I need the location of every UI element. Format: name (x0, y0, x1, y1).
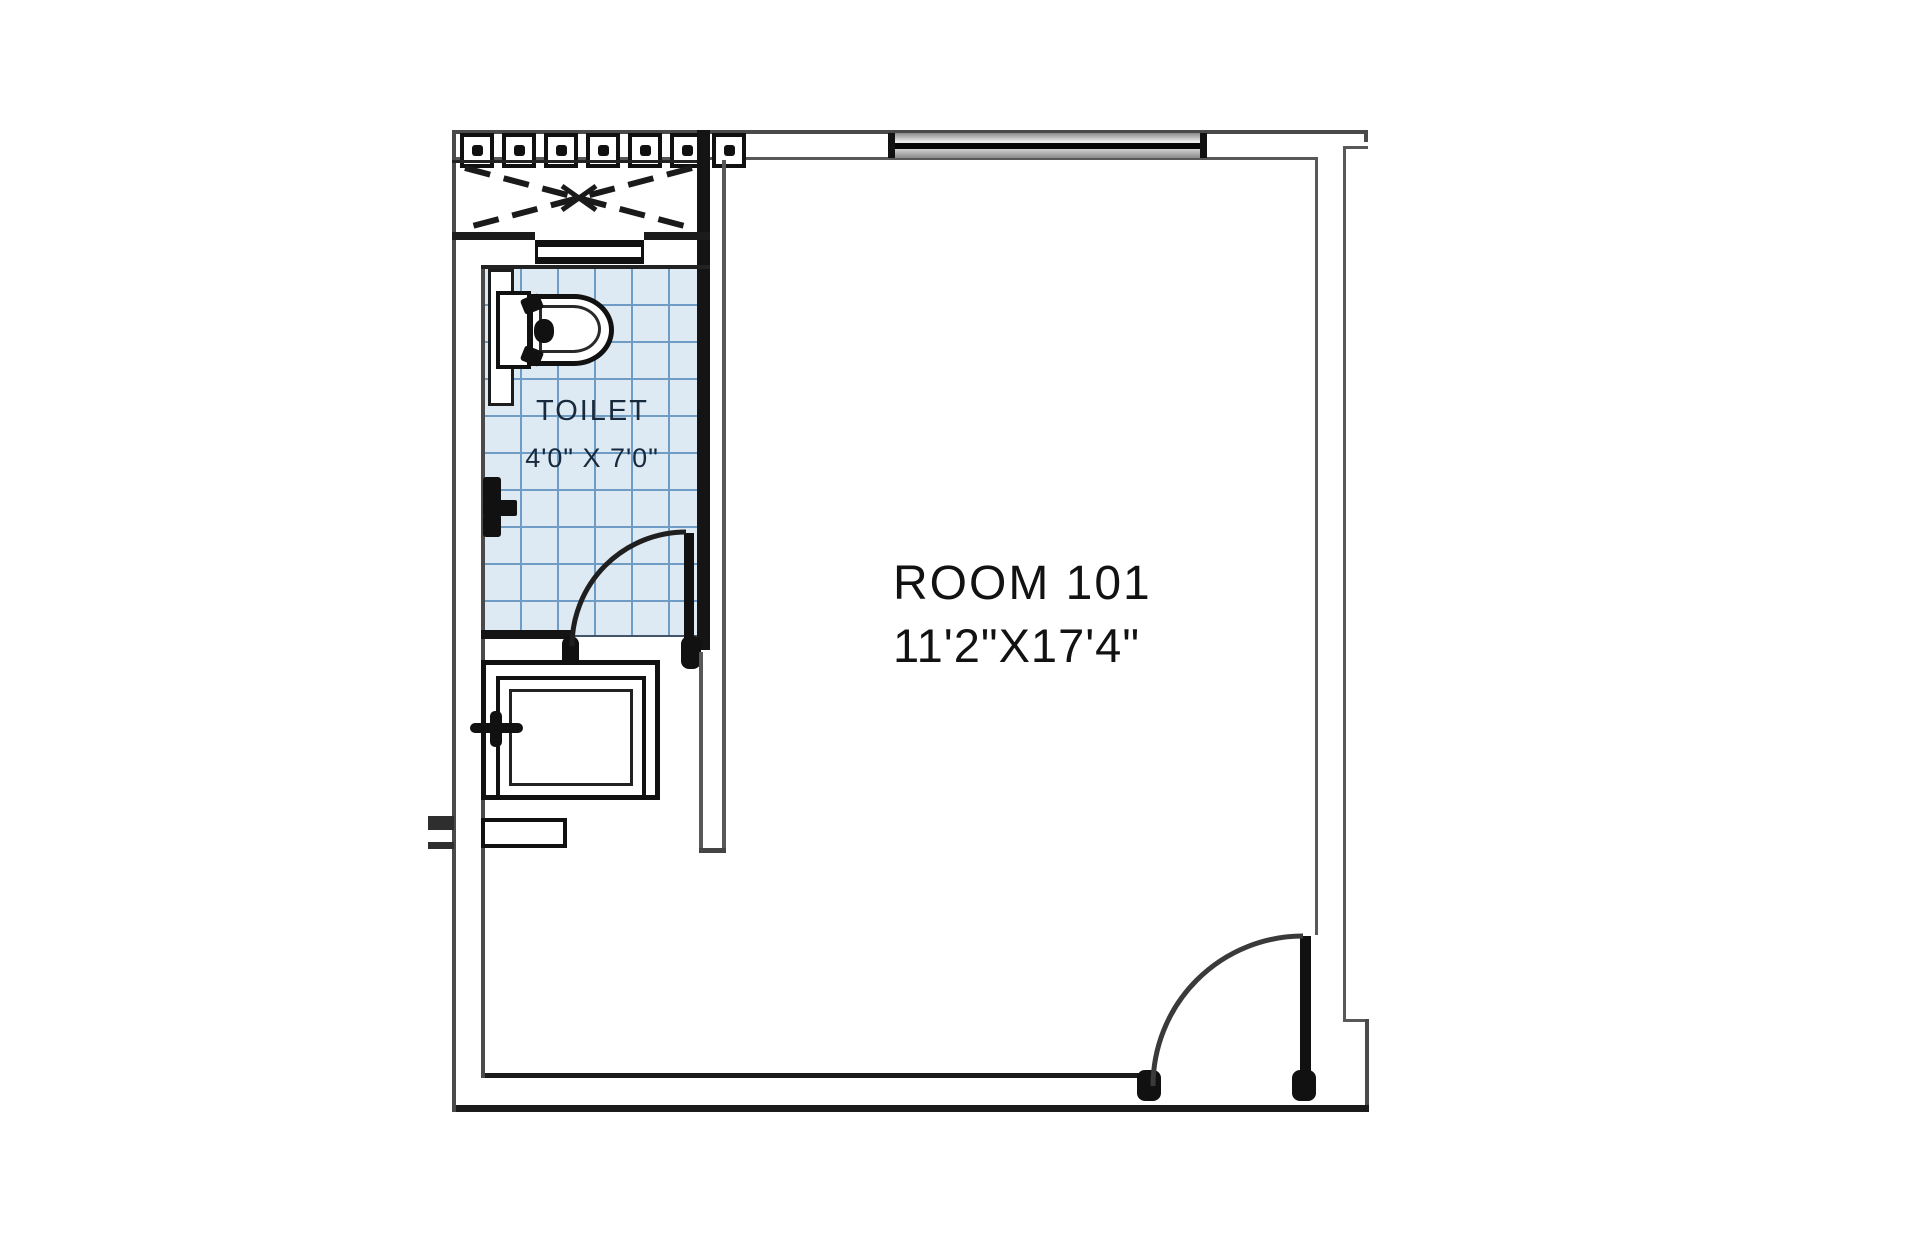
main-door-arc (1153, 936, 1303, 1086)
toilet-door-arc (572, 532, 686, 646)
floor-plan: TOILET 4'0" X 7'0" ROOM 101 11'2"X17'4" (0, 0, 1914, 1250)
plan-linework-overlay (0, 0, 1914, 1250)
shaft-cross (465, 168, 692, 228)
